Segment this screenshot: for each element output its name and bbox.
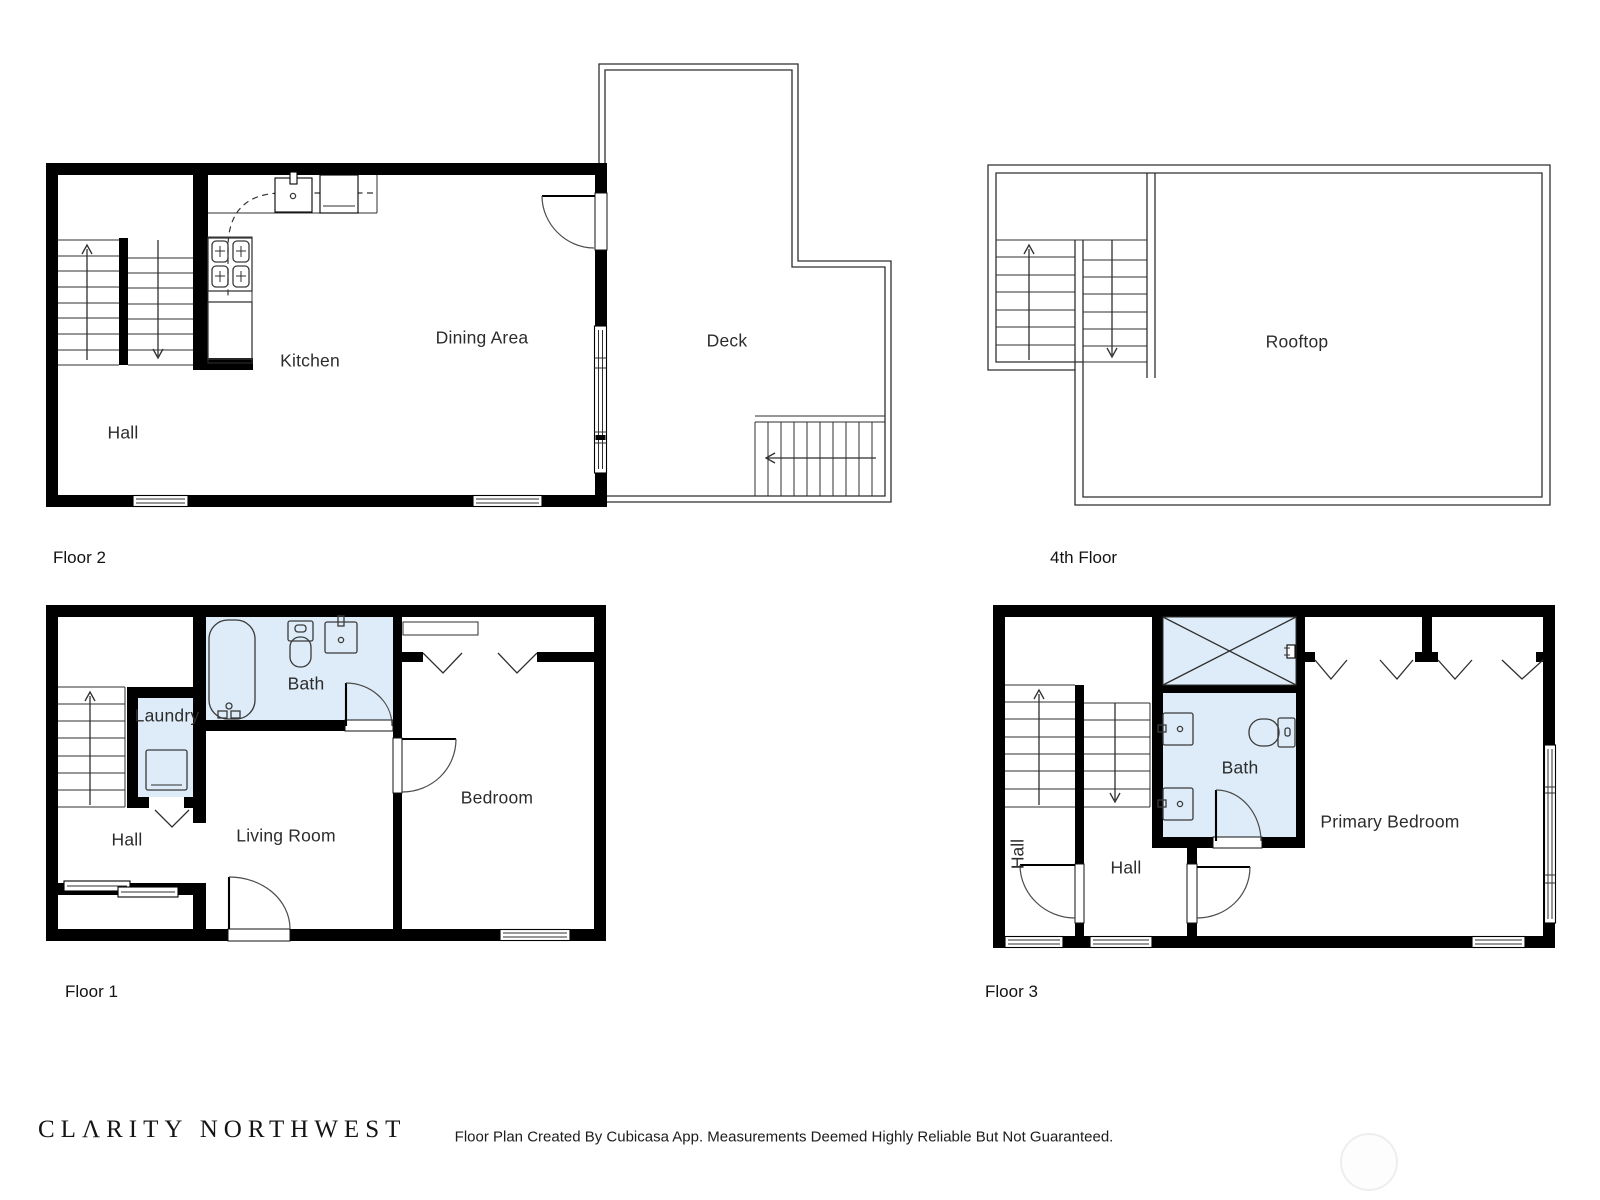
- room-label-living-room: Living Room: [236, 826, 335, 847]
- watermark-circle: [1340, 1133, 1398, 1191]
- room-label-laundry: Laundry: [135, 706, 200, 727]
- room-label-bath: Bath: [288, 674, 325, 695]
- room-label-deck: Deck: [707, 331, 748, 352]
- floor-title-floor3: Floor 3: [985, 982, 1038, 1002]
- disclaimer-text: Floor Plan Created By Cubicasa App. Meas…: [455, 1129, 1114, 1146]
- floor4-staircase: [996, 240, 1147, 362]
- room-label-dining-area: Dining Area: [436, 328, 529, 349]
- room-label-kitchen: Kitchen: [280, 351, 340, 372]
- closet-shelf: [403, 622, 478, 635]
- room-label-hall-vertical: Hall: [1008, 839, 1029, 869]
- stairs-up-arrow-icon: [85, 692, 95, 805]
- room-label-hall: Hall: [1111, 858, 1142, 879]
- hall-door: [1020, 864, 1084, 923]
- primary-bedroom-door: [1187, 864, 1250, 923]
- floor1-plan: [46, 605, 606, 941]
- stairs-down-arrow-icon: [1107, 240, 1117, 357]
- floor-title-floor1: Floor 1: [65, 982, 118, 1002]
- bedroom-door: [393, 738, 456, 793]
- floor2-kitchen-fixtures: [208, 172, 377, 363]
- kitchen-counter-left: [208, 237, 252, 363]
- room-label-rooftop: Rooftop: [1266, 332, 1329, 353]
- room-label-primary-bedroom: Primary Bedroom: [1320, 812, 1459, 833]
- floor-plan-sheet: Hall Kitchen Dining Area Deck Rooftop La…: [0, 0, 1600, 1200]
- deck-area: [599, 64, 891, 502]
- room-label-hall: Hall: [112, 830, 143, 851]
- stove-icon: [208, 238, 252, 291]
- kitchen-sink-icon: [275, 172, 312, 212]
- laundry-door-icon: [155, 810, 189, 827]
- front-door: [228, 877, 290, 941]
- floor-title-floor4: 4th Floor: [1050, 548, 1117, 568]
- floor-title-floor2: Floor 2: [53, 548, 106, 568]
- kitchen-cabinet: [208, 302, 252, 359]
- room-label-bath: Bath: [1222, 758, 1259, 779]
- bifold-door-icon: [1438, 660, 1472, 679]
- room-label-hall: Hall: [108, 423, 139, 444]
- bifold-door-icon: [1315, 660, 1347, 679]
- bifold-door-icon: [1502, 660, 1543, 679]
- floor1-staircase: [58, 687, 125, 807]
- floor2-plan: [46, 64, 891, 507]
- bifold-door-icon: [423, 653, 462, 673]
- deck-staircase: [755, 416, 885, 496]
- primary-closets: [1315, 660, 1543, 679]
- bifold-door-icon: [1380, 660, 1413, 679]
- floor2-right-window: [595, 326, 607, 473]
- floor2-dining-door: [542, 193, 607, 250]
- company-logo: CLΛRITY NORTHWEST: [38, 1116, 406, 1144]
- floor-plan-drawing: [0, 0, 1600, 1200]
- bifold-door-icon: [498, 653, 537, 673]
- bedroom-closet: [403, 622, 537, 673]
- stairs-up-arrow-icon: [1024, 245, 1034, 360]
- floor3-plan: [993, 605, 1556, 948]
- room-label-bedroom: Bedroom: [461, 788, 533, 809]
- stairs-down-arrow-icon: [1110, 703, 1120, 802]
- stairs-up-arrow-icon: [1034, 690, 1044, 805]
- dishwasher-icon: [320, 175, 358, 213]
